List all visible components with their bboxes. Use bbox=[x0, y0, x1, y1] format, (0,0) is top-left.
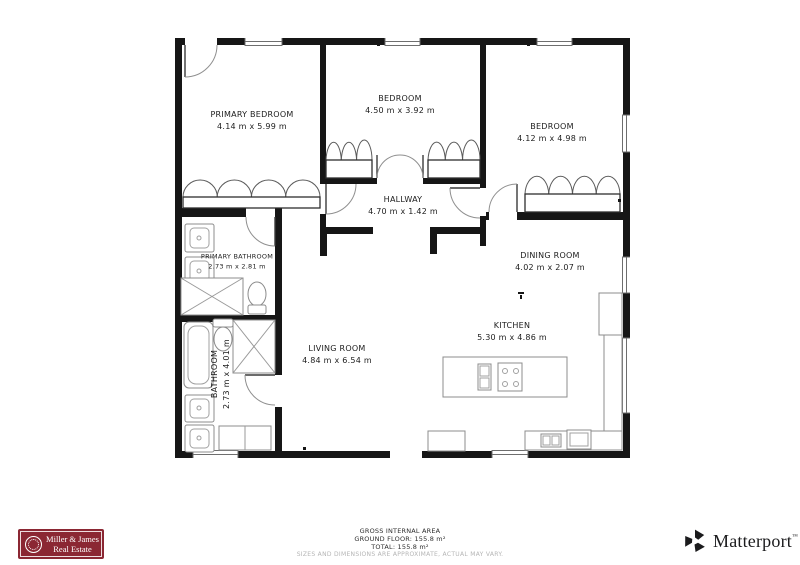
room-dims: 4.02 m x 2.07 m bbox=[515, 262, 585, 274]
label-hallway: HALLWAY 4.70 m x 1.42 m bbox=[368, 194, 438, 218]
shower bbox=[233, 320, 275, 373]
door-primary-bathroom bbox=[246, 217, 275, 246]
window-top-3 bbox=[537, 38, 572, 46]
vanity-sink bbox=[185, 224, 214, 252]
door-bedroom-right bbox=[489, 184, 517, 212]
room-name: HALLWAY bbox=[384, 195, 423, 204]
kitchen-fixtures bbox=[443, 293, 622, 450]
door-hallway-west bbox=[326, 184, 356, 214]
door-hallway-east bbox=[450, 188, 480, 218]
agency-name: Miller & James bbox=[44, 534, 101, 544]
sink bbox=[185, 425, 214, 452]
label-bedroom-top: BEDROOM 4.50 m x 3.92 m bbox=[365, 93, 435, 117]
window-top-2 bbox=[385, 38, 420, 46]
label-living-room: LIVING ROOM 4.84 m x 6.54 m bbox=[302, 343, 372, 367]
window-top-1 bbox=[245, 38, 282, 46]
room-name: LIVING ROOM bbox=[308, 344, 365, 353]
area-summary: GROSS INTERNAL AREA GROUND FLOOR: 155.8 … bbox=[0, 527, 800, 559]
kitchen-sink bbox=[541, 434, 561, 447]
gross-internal-area-title: GROSS INTERNAL AREA bbox=[0, 527, 800, 535]
door-primary-bedroom-exterior bbox=[185, 38, 217, 77]
room-name: DINING ROOM bbox=[520, 251, 579, 260]
room-dims: 2.73 m x 2.81 m bbox=[201, 262, 273, 272]
dining-ceiling-fixture bbox=[518, 292, 524, 299]
room-dims: 2.73 m x 4.01 m bbox=[221, 339, 233, 409]
room-name: PRIMARY BEDROOM bbox=[210, 110, 293, 119]
door-bathroom bbox=[245, 375, 275, 405]
door-bedroom-top-double bbox=[377, 155, 423, 178]
label-kitchen: KITCHEN 5.30 m x 4.86 m bbox=[477, 320, 547, 344]
matterport-logo: Matterport™ bbox=[682, 528, 798, 554]
room-name: BEDROOM bbox=[530, 122, 574, 131]
ground-floor-area: GROUND FLOOR: 155.8 m² bbox=[0, 535, 800, 543]
closet-bedroom-top-left bbox=[326, 140, 372, 178]
fridge bbox=[599, 293, 622, 335]
room-name: BATHROOM bbox=[210, 350, 219, 398]
window-right-dining bbox=[623, 257, 631, 293]
bathroom-cabinet bbox=[219, 426, 271, 450]
room-name: BEDROOM bbox=[378, 94, 422, 103]
window-right-kitchen bbox=[623, 338, 631, 413]
room-dims: 4.14 m x 5.99 m bbox=[210, 121, 293, 133]
toilet bbox=[248, 282, 266, 314]
kitchen-island bbox=[443, 357, 567, 397]
room-dims: 5.30 m x 4.86 m bbox=[477, 332, 547, 344]
trademark-symbol: ™ bbox=[792, 534, 798, 540]
agency-subtitle: Real Estate bbox=[44, 544, 101, 554]
label-dining-room: DINING ROOM 4.02 m x 2.07 m bbox=[515, 250, 585, 274]
window-right-bedroom bbox=[623, 115, 631, 152]
closet-bedroom-top-right bbox=[428, 140, 480, 178]
label-bedroom-right: BEDROOM 4.12 m x 4.98 m bbox=[517, 121, 587, 145]
closet-bedroom-right bbox=[525, 176, 620, 212]
room-dims: 4.12 m x 4.98 m bbox=[517, 133, 587, 145]
matterport-pinwheel-icon bbox=[682, 528, 708, 554]
area-disclaimer: SIZES AND DIMENSIONS ARE APPROXIMATE, AC… bbox=[0, 551, 800, 559]
total-area: TOTAL: 155.8 m² bbox=[0, 543, 800, 551]
room-name: PRIMARY BATHROOM bbox=[201, 252, 273, 260]
door-front-entry bbox=[390, 451, 422, 458]
label-bathroom: BATHROOM 2.73 m x 4.01 m bbox=[209, 339, 233, 409]
label-primary-bathroom: PRIMARY BATHROOM 2.73 m x 2.81 m bbox=[201, 252, 273, 272]
agency-logo: Miller & James Real Estate bbox=[18, 529, 104, 559]
window-bottom-living bbox=[492, 451, 528, 459]
closet-primary-bedroom bbox=[183, 180, 320, 208]
room-dims: 4.50 m x 3.92 m bbox=[365, 105, 435, 117]
room-dims: 4.84 m x 6.54 m bbox=[302, 355, 372, 367]
agency-seal-icon bbox=[25, 536, 42, 553]
shower bbox=[181, 278, 243, 315]
label-primary-bedroom: PRIMARY BEDROOM 4.14 m x 5.99 m bbox=[210, 109, 293, 133]
kitchen-appliance bbox=[567, 430, 591, 449]
matterport-wordmark: Matterport™ bbox=[713, 531, 798, 552]
entry-closet bbox=[428, 431, 465, 451]
room-name: KITCHEN bbox=[494, 321, 530, 330]
room-dims: 4.70 m x 1.42 m bbox=[368, 206, 438, 218]
